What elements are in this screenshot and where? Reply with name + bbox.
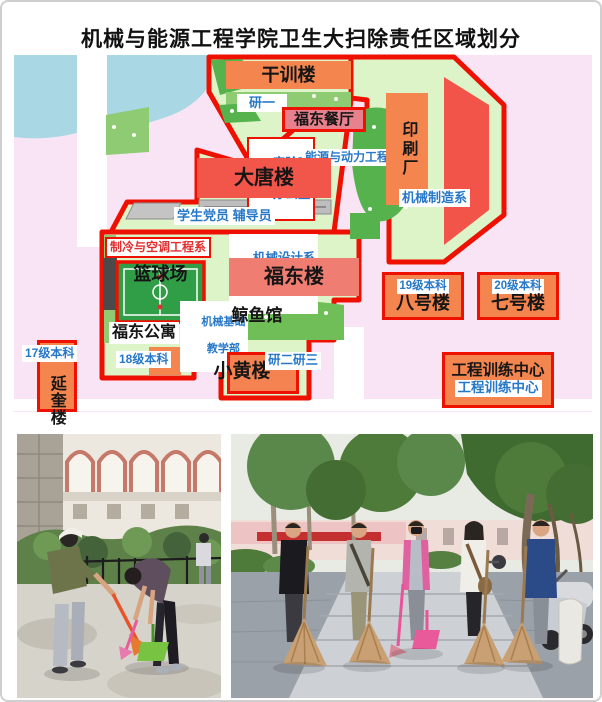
stone-column	[17, 434, 63, 546]
label-g17: 17级本科	[22, 345, 77, 362]
page-title: 机械与能源工程学院卫生大扫除责任区域划分	[2, 23, 600, 53]
label-g19: 19级本科	[397, 279, 448, 293]
road-vertical-left	[77, 55, 107, 247]
page: 机械与能源工程学院卫生大扫除责任区域划分	[0, 0, 602, 702]
label-jixie-zhizao: 机械制造系	[399, 189, 470, 207]
label-lanqiuchang: 篮球场	[117, 265, 204, 284]
label-dangyuan: 学生党员 辅导员	[174, 207, 275, 225]
building-qihaolou: 20级本科 七号楼	[477, 272, 559, 320]
building-gongcheng-xunlian: 工程训练中心 工程训练中心	[442, 352, 554, 408]
label-yankuilou: 延奎楼	[47, 367, 64, 433]
photo-right-canvas	[231, 434, 593, 698]
label-jingyuguan: 鲸鱼馆	[227, 307, 287, 325]
dark-bar	[103, 258, 117, 310]
photo-right	[231, 434, 593, 698]
label-g20: 20级本科	[492, 279, 543, 293]
label-fudong-gongyu: 福东公寓	[109, 322, 179, 344]
building-datanglou: 大唐楼	[197, 158, 331, 198]
building-fudonglou: 福东楼	[229, 258, 359, 296]
building-fudong-canteen: 福东餐厅	[282, 107, 366, 132]
photo-left	[17, 434, 221, 698]
pond-left	[14, 55, 77, 138]
building-ganxunlou: 干训楼	[226, 61, 351, 89]
white-sack	[559, 599, 583, 664]
label-g18: 18级本科	[116, 351, 171, 368]
campus-map: 干训楼 研一 福东餐厅 实验室 办公室 能源与动力工程系 印刷厂 机械制造系 大…	[14, 55, 592, 435]
label-yanyi: 研一	[237, 94, 287, 112]
label-zhileng: 制冷与空调工程系	[105, 237, 211, 258]
label-yaner-yansan: 研二研三	[265, 352, 321, 370]
building-bahaolou: 19级本科 八号楼	[382, 272, 464, 320]
photo-left-canvas	[17, 434, 221, 698]
label-gongxun-blue: 工程训练中心	[455, 380, 542, 397]
